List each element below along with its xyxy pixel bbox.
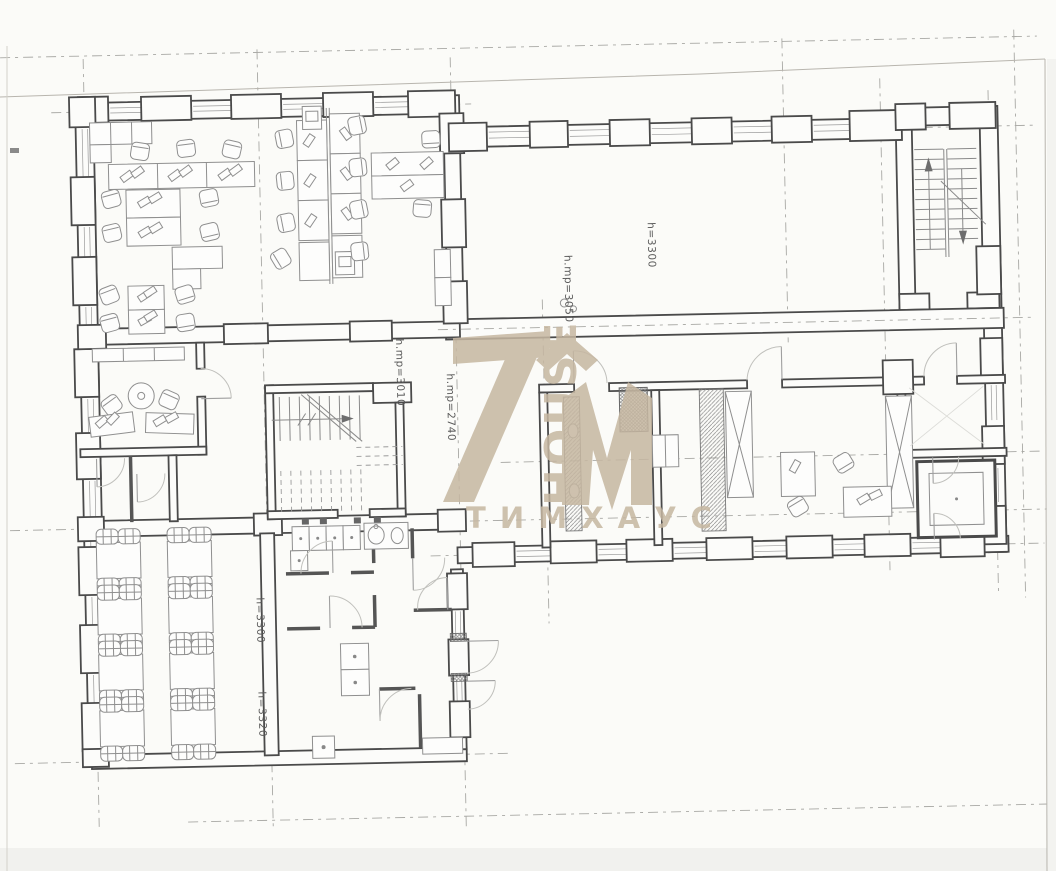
northeast-stairwell [914,148,986,257]
dining-table-group [169,639,214,704]
plan-content: h=3300 h.mp=3050 h.mp=3010 h.mp=2740 h=3… [0,29,1056,839]
door-arc [467,681,496,710]
dining-table-group [96,528,141,593]
door-threshold [451,673,467,681]
kitchen-room [290,515,463,758]
desk [781,452,816,497]
door-arc [379,688,412,721]
scan-speck [10,148,19,153]
hall-north-wall [456,118,896,147]
stair-direction-arrow [342,414,354,422]
chair [176,139,196,158]
door-arc [137,473,166,502]
door-arc [417,578,448,611]
desk [371,152,443,177]
shelf-counter [422,737,462,754]
desk [843,486,892,517]
door-arc [466,640,499,673]
label-cafeteria-height-2: h=3320 [255,691,268,737]
corridor-closet [883,360,914,395]
dining-table-group [167,527,212,592]
open-office-room [89,103,452,334]
watermark: HOUSE Т И М Х А У С [443,319,714,535]
desk [126,189,181,218]
scan-top-edge [0,59,1045,97]
stairwell-west-wall [896,126,916,310]
stair-down-arrow [959,231,967,245]
stairwell-south-wall-left [899,293,929,310]
scanned-floor-plan-page: h=3300 h.mp=3050 h.mp=3010 h.mp=2740 h=3… [0,0,1056,871]
label-landing-height: h.mp=2740 [444,373,457,441]
watermark-subtitle: Т И М Х А У С [466,501,714,535]
door-arc [329,595,362,628]
label-cafeteria-height-1: h=3300 [253,597,266,643]
label-hall-height: h=3300 [645,222,658,268]
dining-table-group [98,640,143,705]
door-threshold [450,633,466,641]
small-office-room [87,346,232,437]
door-arc [923,343,957,377]
door-arc [201,368,232,399]
scan-right-edge [1045,59,1047,871]
stair-block-west-wall [265,385,276,519]
dining-table-group [100,696,145,761]
chair [221,139,242,160]
central-staircase [271,392,403,515]
label-hall-clear-height: h.mp=3050 [561,255,574,323]
door-arc [746,347,782,381]
dining-table-group [97,584,142,649]
printer [302,106,321,129]
wall-cabinet [89,122,151,145]
sink-counter [364,522,409,549]
dining-table-group [168,583,213,648]
round-table [128,383,155,410]
door-arc [413,558,446,591]
dining-table-group [170,695,215,760]
scan-right-shadow [1047,59,1056,871]
floor-plan-drawing: h=3300 h.mp=3050 h.mp=3010 h.mp=2740 h=3… [0,0,1056,871]
cafeteria-room [96,527,216,761]
label-stair-height: h.mp=3010 [393,338,406,406]
chair [130,142,150,162]
shelf [92,347,184,362]
scan-bottom-shadow [0,848,1056,871]
watermark-vertical-text: HOUSE [536,319,587,506]
